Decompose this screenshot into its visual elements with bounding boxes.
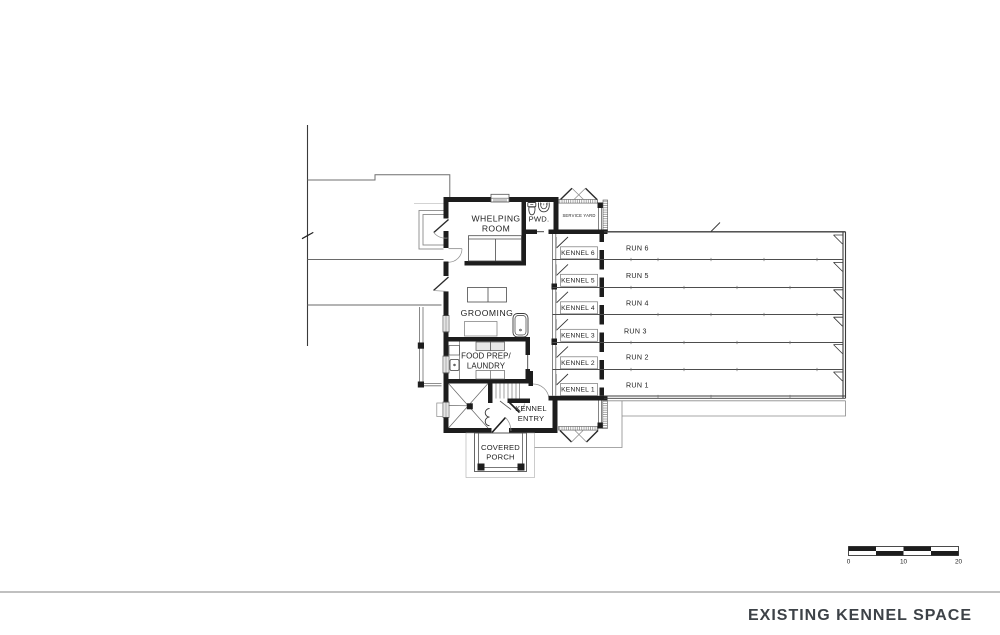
svg-text:LAUNDRY: LAUNDRY [467, 362, 506, 371]
svg-text:KENNEL 4: KENNEL 4 [561, 305, 595, 312]
svg-text:KENNEL: KENNEL [515, 404, 547, 413]
svg-text:RUN 1: RUN 1 [626, 382, 649, 390]
svg-text:20: 20 [955, 559, 963, 566]
svg-text:KENNEL 3: KENNEL 3 [561, 332, 595, 339]
svg-text:EXISTING KENNEL SPACE: EXISTING KENNEL SPACE [748, 607, 972, 624]
svg-text:WHELPING: WHELPING [471, 214, 520, 224]
svg-text:RUN 3: RUN 3 [624, 328, 647, 336]
svg-text:RUN 6: RUN 6 [626, 245, 649, 253]
svg-text:RUN 5: RUN 5 [626, 272, 649, 280]
svg-text:ENTRY: ENTRY [518, 414, 545, 423]
svg-text:RUN 2: RUN 2 [626, 354, 649, 362]
svg-text:KENNEL 5: KENNEL 5 [561, 277, 595, 284]
svg-text:PWD.: PWD. [529, 215, 550, 224]
svg-text:COVERED: COVERED [481, 443, 520, 452]
svg-text:KENNEL 1: KENNEL 1 [561, 387, 595, 394]
svg-text:GROOMING: GROOMING [461, 308, 514, 318]
svg-text:10: 10 [900, 559, 908, 566]
svg-text:RUN 4: RUN 4 [626, 300, 649, 308]
svg-text:SERVICE YARD: SERVICE YARD [562, 213, 595, 218]
svg-text:FOOD PREP/: FOOD PREP/ [461, 352, 511, 361]
svg-text:KENNEL 6: KENNEL 6 [561, 250, 595, 257]
svg-text:ROOM: ROOM [482, 224, 510, 234]
svg-text:0: 0 [847, 559, 851, 566]
svg-text:KENNEL 2: KENNEL 2 [561, 360, 595, 367]
svg-text:PORCH: PORCH [486, 453, 514, 462]
